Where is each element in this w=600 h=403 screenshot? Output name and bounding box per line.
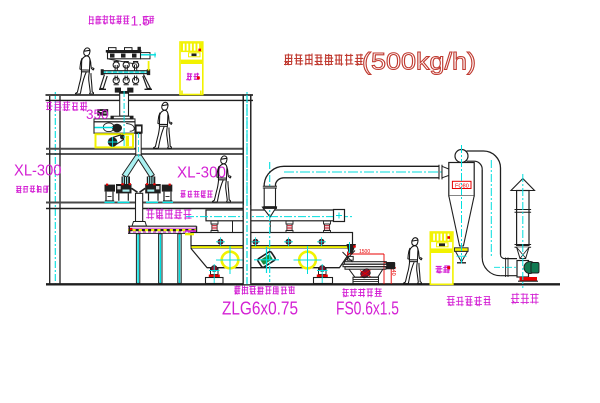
svg-text:1.5: 1.5 — [131, 13, 151, 29]
svg-text:ZLG6x0.75: ZLG6x0.75 — [222, 299, 298, 319]
svg-text:FS0.6x1.5: FS0.6x1.5 — [336, 299, 399, 319]
svg-text:350: 350 — [86, 107, 109, 122]
svg-text:XL-300: XL-300 — [14, 163, 62, 180]
svg-text:(500kg/h): (500kg/h) — [362, 49, 476, 76]
